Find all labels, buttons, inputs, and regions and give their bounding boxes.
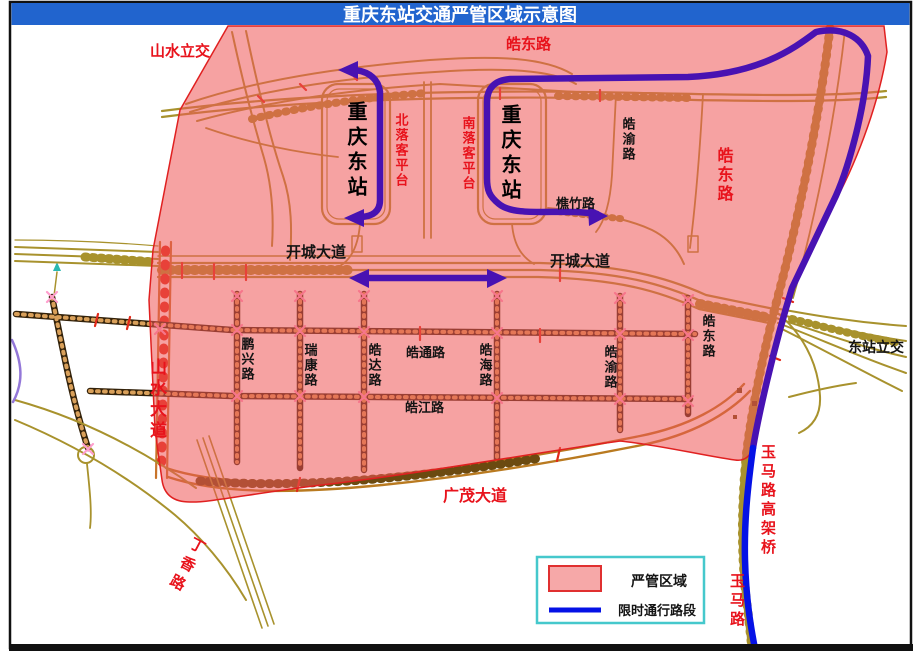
label-station-right: 重庆东站 (498, 104, 522, 204)
map-frame-bottom (9, 644, 913, 651)
label-haodong-lower: 皓东路 (700, 313, 716, 359)
label-guangmao-avenue: 广茂大道 (443, 486, 507, 505)
label-yuma-viaduct: 玉马路高架桥 (759, 444, 777, 558)
traffic-map: 山水立交 皓东路 北落客平台 南落客平台 重庆东站 重庆东站 皓渝路 皓东路 樵… (0, 0, 922, 651)
legend-route-label: 限时通行路段 (618, 603, 696, 619)
legend: 严管区域 限时通行路段 (537, 557, 704, 623)
legend-zone-label: 严管区域 (630, 573, 687, 590)
legend-zone-swatch (549, 566, 601, 591)
label-dongzhan-interchange: 东站立交 (848, 339, 904, 356)
label-haoda: 皓达路 (366, 342, 382, 388)
label-station-left: 重庆东站 (344, 101, 368, 201)
label-haotong: 皓通路 (406, 345, 446, 361)
map-svg: 山水立交 皓东路 北落客平台 南落客平台 重庆东站 重庆东站 皓渝路 皓东路 樵… (0, 0, 922, 651)
map-title: 重庆东站交通严管区域示意图 (343, 4, 577, 26)
label-north-dropoff: 北落客平台 (393, 113, 409, 188)
label-pengxing: 鹏兴路 (239, 336, 255, 382)
label-qiaozhu: 樵竹路 (556, 196, 596, 212)
label-ruikang: 瑞康路 (302, 342, 318, 388)
label-shanshui-avenue: 山水大道 (146, 358, 167, 442)
label-haoyu-lower: 皓渝路 (602, 344, 618, 390)
label-shanshui-interchange: 山水立交 (150, 42, 210, 60)
label-haohai: 皓海路 (477, 342, 493, 388)
label-south-dropoff: 南落客平台 (460, 115, 476, 191)
label-haodong-right: 皓东路 (715, 146, 734, 204)
label-kaicheng-left: 开城大道 (286, 243, 346, 261)
label-haoyu-top: 皓渝路 (620, 116, 636, 162)
label-haojiang: 皓江路 (405, 400, 445, 416)
label-kaicheng-right: 开城大道 (550, 252, 610, 270)
label-yuma-road: 玉马路 (728, 573, 746, 630)
label-haodong-top: 皓东路 (506, 35, 552, 53)
